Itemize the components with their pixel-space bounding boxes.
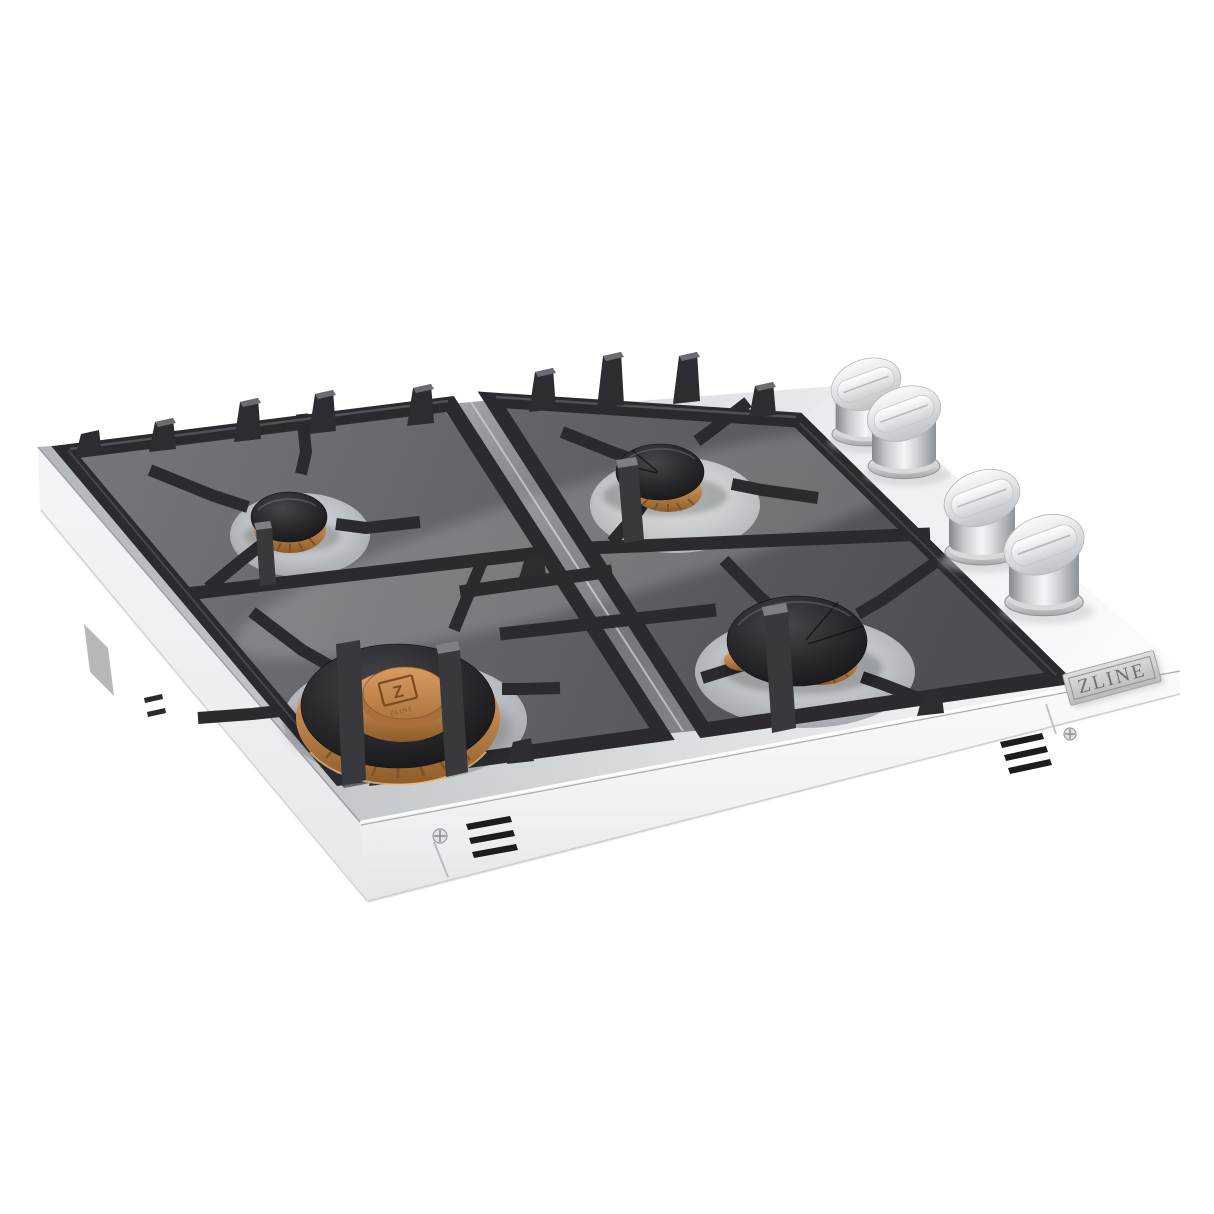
vent-slit [144, 694, 163, 703]
grate-finger [75, 430, 102, 458]
mounting-tab-shadow [84, 624, 114, 696]
grate-arm [301, 414, 306, 474]
vent-slit [147, 708, 166, 717]
screw-front-left [433, 829, 447, 843]
burner-cap [727, 596, 867, 686]
vent-slat [1004, 746, 1048, 761]
left-side-vent-slits [144, 694, 166, 717]
screw-front-right [1064, 728, 1076, 740]
grate-arm [502, 688, 560, 689]
product-photo-canvas: Z ZLINE [0, 0, 1214, 1214]
grate-arm [198, 711, 280, 718]
vent-slat [1008, 759, 1052, 774]
cooktop-product-photo: Z ZLINE [0, 0, 1214, 1214]
grate-arm [336, 522, 420, 528]
grate-finger [597, 352, 624, 408]
